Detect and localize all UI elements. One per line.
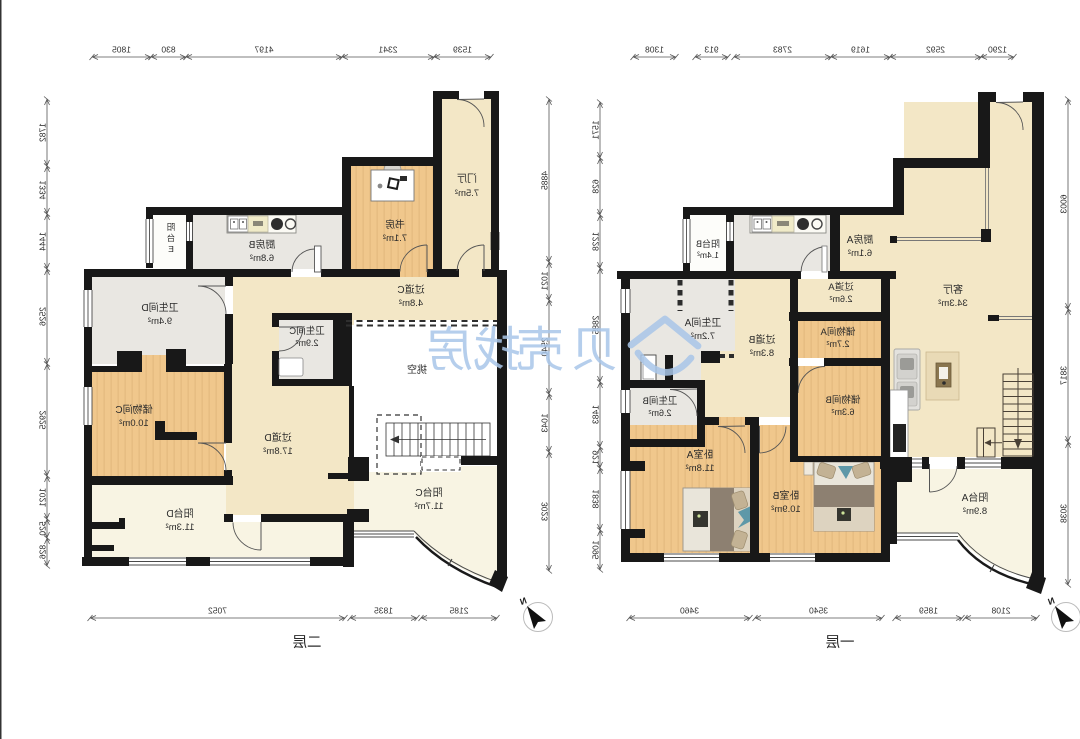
- svg-text:3460: 3460: [680, 606, 699, 616]
- svg-text:1290: 1290: [988, 45, 1007, 55]
- svg-text:1539: 1539: [453, 45, 472, 55]
- svg-text:1444: 1444: [38, 232, 48, 251]
- svg-text:3038: 3038: [1059, 504, 1069, 523]
- svg-text:1619: 1619: [851, 45, 870, 55]
- svg-text:10.9m²: 10.9m²: [771, 504, 801, 515]
- svg-text:4.8m²: 4.8m²: [399, 298, 423, 309]
- svg-text:N: N: [519, 595, 529, 607]
- svg-text:卫生间B: 卫生间B: [643, 395, 678, 407]
- svg-text:壳: 壳: [516, 324, 564, 377]
- svg-text:门厅: 门厅: [457, 172, 477, 185]
- svg-text:2341: 2341: [378, 45, 397, 55]
- svg-text:3817: 3817: [1059, 366, 1069, 385]
- svg-text:阳台D: 阳台D: [166, 507, 193, 520]
- svg-text:阳台C: 阳台C: [415, 486, 442, 499]
- svg-text:34.3m²: 34.3m²: [938, 298, 968, 309]
- svg-text:913: 913: [704, 45, 718, 55]
- svg-text:6.8m²: 6.8m²: [250, 253, 274, 264]
- svg-text:二层: 二层: [293, 635, 322, 651]
- svg-text:8.9m²: 8.9m²: [963, 506, 987, 517]
- svg-text:书房: 书房: [385, 218, 405, 231]
- svg-text:1805: 1805: [112, 45, 131, 55]
- svg-text:阳: 阳: [167, 222, 176, 232]
- svg-text:6.1m²: 6.1m²: [848, 248, 872, 259]
- svg-text:2.9m²: 2.9m²: [295, 338, 318, 348]
- svg-text:1483: 1483: [591, 405, 601, 424]
- svg-text:11.8m²: 11.8m²: [686, 463, 715, 474]
- svg-text:7.5m²: 7.5m²: [455, 188, 479, 199]
- svg-text:1835: 1835: [374, 606, 393, 616]
- svg-text:1043: 1043: [540, 414, 550, 433]
- svg-text:826: 826: [38, 545, 48, 559]
- svg-text:储物间C: 储物间C: [115, 403, 152, 416]
- svg-text:过道C: 过道C: [397, 283, 424, 296]
- svg-text:9.4m²: 9.4m²: [148, 316, 172, 327]
- svg-text:1095: 1095: [591, 541, 601, 560]
- svg-text:卫生间A: 卫生间A: [684, 316, 721, 329]
- svg-text:厨房B: 厨房B: [248, 238, 275, 251]
- svg-text:客厅: 客厅: [943, 283, 963, 296]
- svg-text:2526: 2526: [38, 307, 48, 326]
- svg-text:1308: 1308: [645, 45, 664, 55]
- svg-text:1859: 1859: [919, 606, 938, 616]
- svg-text:2592: 2592: [926, 45, 945, 55]
- svg-text:2783: 2783: [773, 45, 792, 55]
- svg-text:厨房A: 厨房A: [846, 233, 873, 246]
- svg-text:3540: 3540: [809, 606, 828, 616]
- svg-text:卧室B: 卧室B: [772, 489, 799, 502]
- svg-text:过道D: 过道D: [264, 431, 291, 444]
- svg-text:10.0m²: 10.0m²: [119, 418, 149, 429]
- svg-text:台: 台: [167, 233, 176, 243]
- svg-text:1.4m²: 1.4m²: [697, 250, 719, 260]
- svg-text:2185: 2185: [449, 606, 468, 616]
- svg-text:1021: 1021: [38, 488, 48, 507]
- svg-text:2925: 2925: [38, 411, 48, 430]
- svg-text:8.3m²: 8.3m²: [750, 348, 774, 359]
- svg-text:找: 找: [473, 324, 521, 377]
- svg-text:贝: 贝: [570, 324, 618, 377]
- svg-text:1571: 1571: [591, 121, 601, 140]
- svg-text:7.1m²: 7.1m²: [383, 233, 407, 244]
- svg-text:N: N: [1047, 595, 1057, 607]
- svg-text:过道A: 过道A: [828, 281, 854, 293]
- svg-text:1782: 1782: [38, 123, 48, 142]
- svg-text:6.3m²: 6.3m²: [831, 407, 854, 417]
- svg-text:7052: 7052: [208, 606, 227, 616]
- svg-text:2.7m²: 2.7m²: [826, 339, 849, 349]
- svg-text:储物间B: 储物间B: [826, 394, 861, 406]
- svg-text:阳台A: 阳台A: [961, 491, 988, 504]
- svg-text:储物间A: 储物间A: [820, 326, 856, 338]
- svg-text:2.6m²: 2.6m²: [648, 408, 671, 418]
- svg-text:3023: 3023: [540, 502, 550, 521]
- svg-text:830: 830: [161, 45, 175, 55]
- svg-text:1021: 1021: [540, 272, 550, 291]
- svg-text:1838: 1838: [591, 490, 601, 509]
- svg-text:17.8m²: 17.8m²: [263, 446, 293, 457]
- svg-text:挑空: 挑空: [407, 363, 427, 376]
- svg-text:卧室A: 卧室A: [686, 448, 713, 461]
- svg-text:阳台B: 阳台B: [696, 238, 720, 249]
- svg-text:6003: 6003: [1059, 195, 1069, 214]
- svg-text:628: 628: [591, 179, 601, 193]
- svg-text:1228: 1228: [591, 232, 601, 251]
- svg-text:一层: 一层: [826, 635, 855, 651]
- svg-text:E: E: [168, 244, 174, 254]
- svg-text:11.7m²: 11.7m²: [415, 501, 444, 512]
- svg-text:520: 520: [38, 521, 48, 535]
- svg-text:4197: 4197: [254, 45, 273, 55]
- svg-text:2108: 2108: [991, 606, 1010, 616]
- svg-text:2.6m²: 2.6m²: [829, 294, 852, 304]
- svg-text:11.3m²: 11.3m²: [166, 522, 195, 533]
- svg-text:4885: 4885: [540, 171, 550, 190]
- svg-text:卫生间C: 卫生间C: [289, 325, 325, 337]
- svg-text:卫生间D: 卫生间D: [141, 301, 178, 314]
- svg-text:1334: 1334: [38, 181, 48, 200]
- svg-text:房: 房: [425, 324, 473, 377]
- svg-text:过道B: 过道B: [748, 333, 775, 346]
- svg-text:921: 921: [591, 450, 601, 464]
